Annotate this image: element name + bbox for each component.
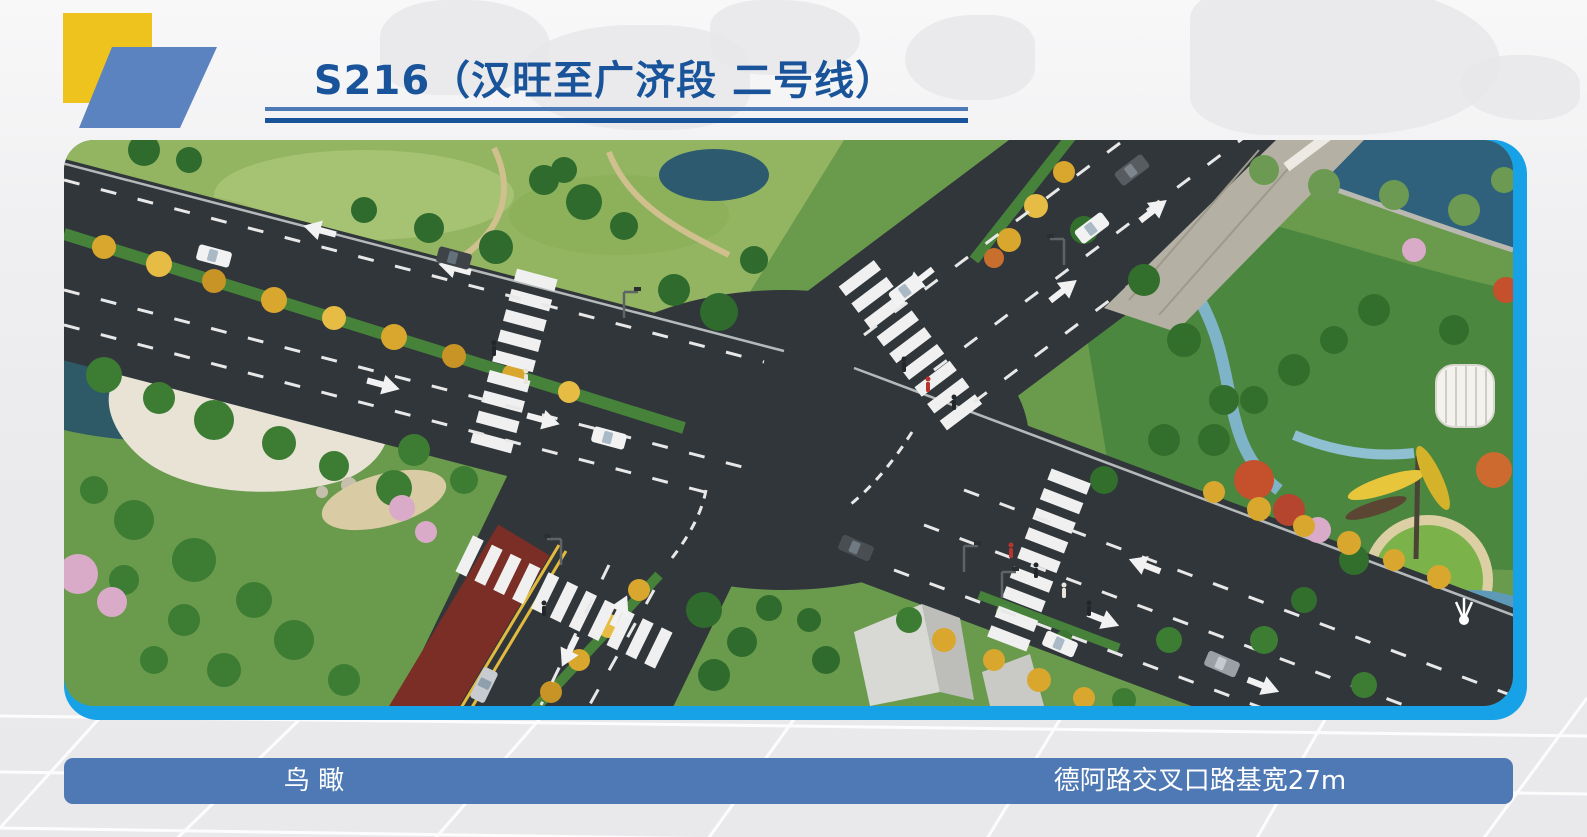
intersection-scene	[64, 140, 1513, 706]
figure-frame	[64, 140, 1527, 720]
slide: { "slide": { "title": "S216（汉旺至广济段 二号线）"…	[0, 0, 1587, 837]
aerial-rendering	[64, 140, 1513, 706]
title-underline-dark	[265, 118, 968, 123]
world-map-shape	[1460, 55, 1580, 120]
world-map-shape	[1190, 0, 1500, 135]
caption-right: 德阿路交叉口路基宽27m	[950, 766, 1450, 796]
page-title: S216（汉旺至广济段 二号线）	[255, 48, 955, 106]
yellow-accent-square	[63, 13, 152, 103]
caption-bar: 鸟 瞰 德阿路交叉口路基宽27m	[64, 758, 1513, 804]
title-underline-light	[265, 107, 968, 111]
pavilion	[1436, 365, 1494, 427]
caption-left: 鸟 瞰	[64, 766, 564, 796]
